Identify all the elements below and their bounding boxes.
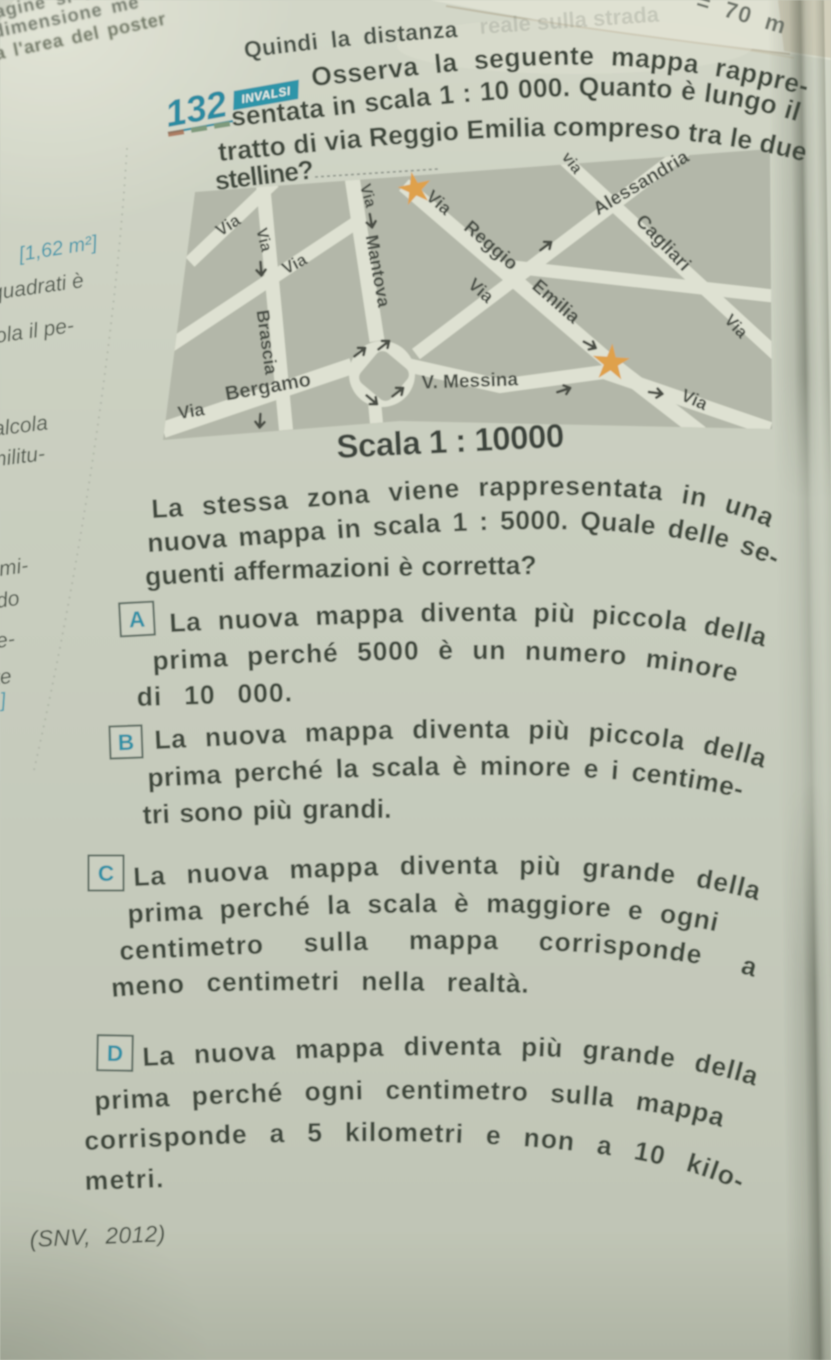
svg-text:C: C: [98, 861, 114, 886]
svg-text:A: A: [128, 607, 146, 633]
svg-text:B: B: [117, 730, 134, 756]
svg-text:metri.: metri.: [84, 1163, 165, 1196]
svg-text:di 10 000.: di 10 000.: [136, 677, 293, 712]
svg-text:Via: Via: [176, 399, 206, 423]
svg-text:do: do: [0, 587, 21, 613]
svg-text:mi-: mi-: [0, 554, 30, 581]
svg-text:D: D: [107, 1041, 124, 1066]
svg-text:V. Messina: V. Messina: [421, 369, 519, 393]
